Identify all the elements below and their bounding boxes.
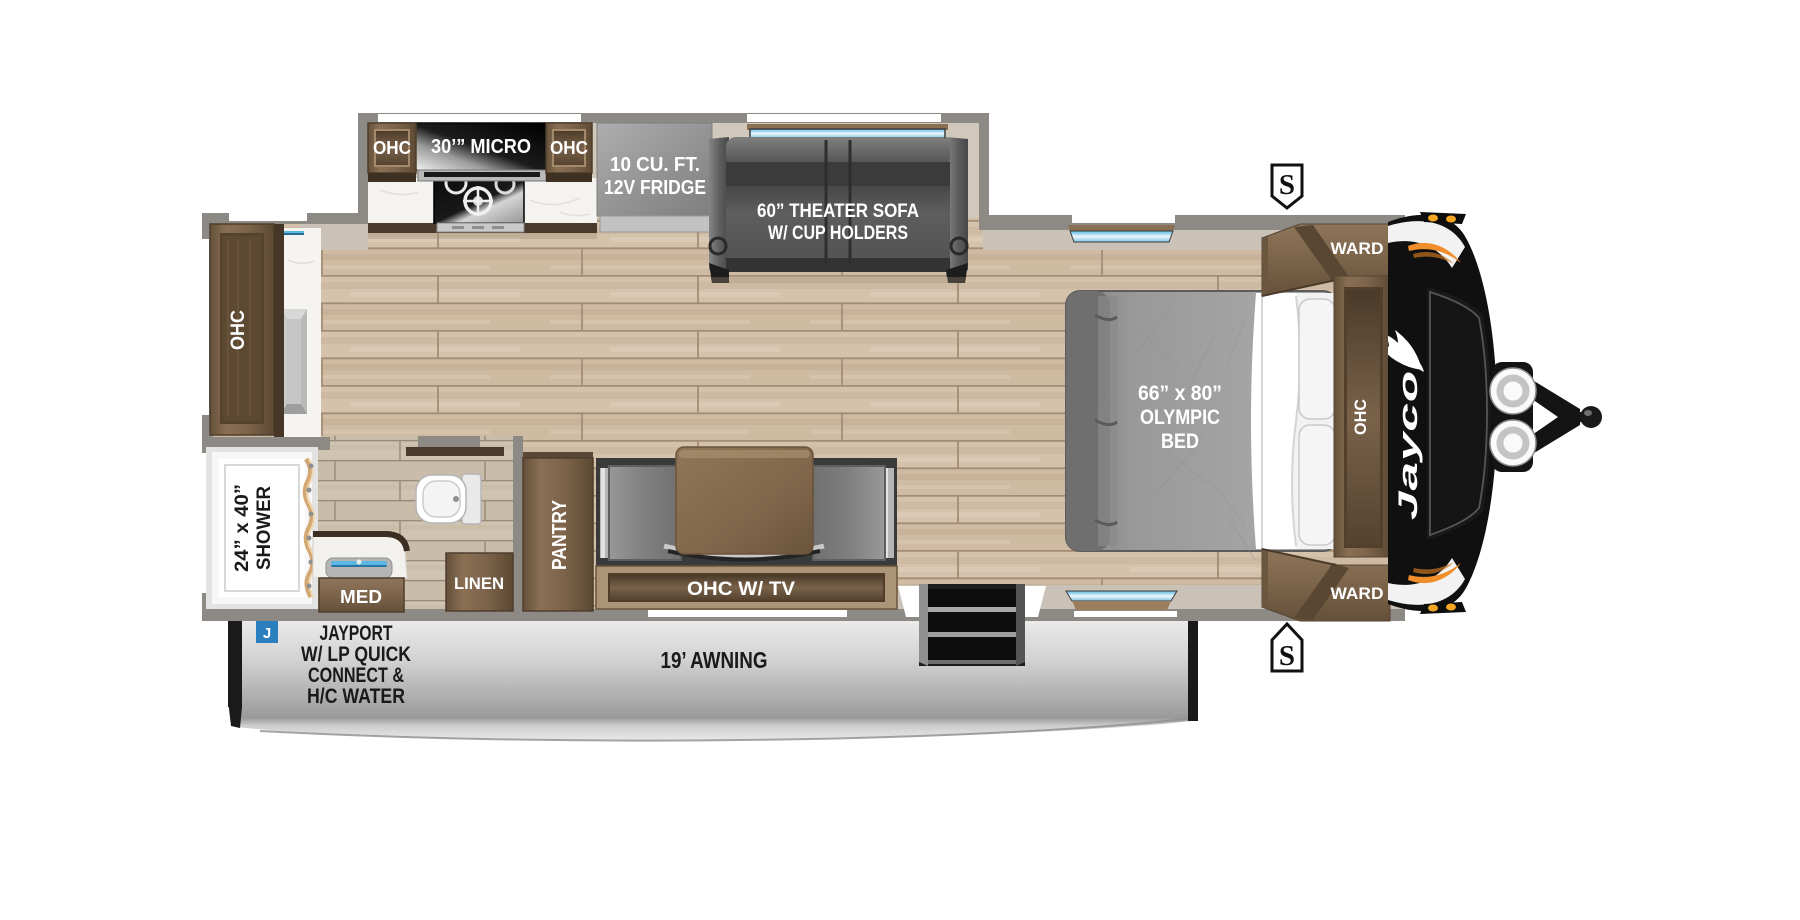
- svg-text:Jayco: Jayco: [1393, 370, 1423, 520]
- svg-text:H/C WATER: H/C WATER: [307, 685, 405, 708]
- svg-text:LINEN: LINEN: [454, 574, 504, 593]
- svg-text:W/ LP QUICK: W/ LP QUICK: [301, 643, 411, 666]
- svg-text:S: S: [1279, 169, 1295, 201]
- svg-text:SHOWER: SHOWER: [254, 486, 275, 570]
- svg-text:OHC: OHC: [228, 310, 249, 350]
- svg-text:J: J: [263, 625, 271, 642]
- svg-text:66” x 80”: 66” x 80”: [1138, 382, 1222, 405]
- svg-text:OHC: OHC: [1351, 399, 1370, 435]
- svg-text:24” x 40”: 24” x 40”: [232, 484, 253, 572]
- svg-text:WARD: WARD: [1331, 239, 1384, 258]
- svg-text:12V FRIDGE: 12V FRIDGE: [604, 177, 706, 199]
- svg-text:OHC W/ TV: OHC W/ TV: [687, 579, 795, 600]
- svg-text:WARD: WARD: [1331, 584, 1384, 603]
- svg-text:MED: MED: [340, 587, 382, 607]
- svg-text:OLYMPIC: OLYMPIC: [1140, 406, 1220, 429]
- svg-text:60” THEATER SOFA: 60” THEATER SOFA: [757, 201, 919, 222]
- svg-text:CONNECT &: CONNECT &: [308, 664, 404, 687]
- svg-text:30’” MICRO: 30’” MICRO: [431, 136, 531, 158]
- svg-text:PANTRY: PANTRY: [549, 499, 571, 570]
- svg-text:10 CU. FT.: 10 CU. FT.: [610, 154, 700, 176]
- svg-text:BED: BED: [1161, 430, 1199, 453]
- svg-text:S: S: [1279, 640, 1295, 672]
- svg-text:OHC: OHC: [550, 138, 588, 158]
- svg-text:JAYPORT: JAYPORT: [320, 622, 393, 645]
- svg-text:W/ CUP HOLDERS: W/ CUP HOLDERS: [768, 223, 908, 244]
- svg-text:19’ AWNING: 19’ AWNING: [661, 647, 768, 673]
- svg-text:OHC: OHC: [373, 138, 411, 158]
